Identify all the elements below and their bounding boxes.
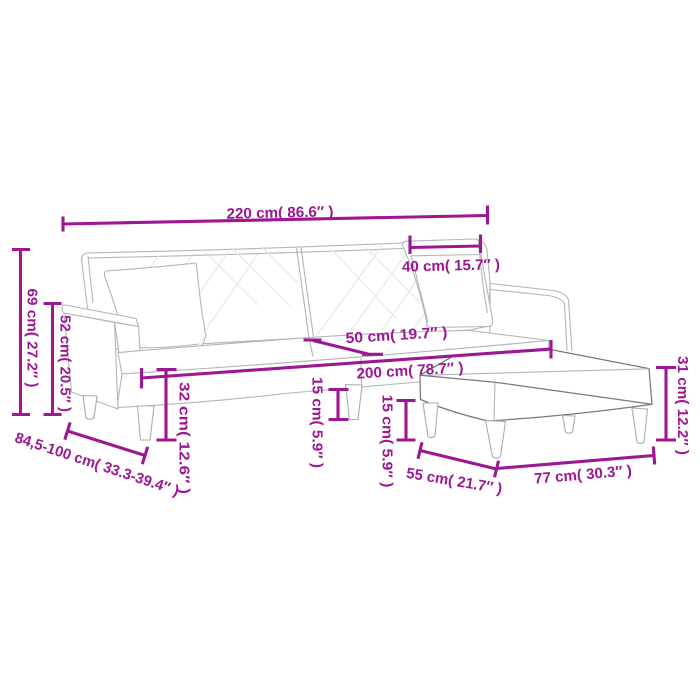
svg-text:52 cm( 20.5″ ): 52 cm( 20.5″ ): [57, 315, 74, 412]
svg-text:32 cm( 12.6″ ): 32 cm( 12.6″ ): [176, 382, 193, 494]
svg-text:220 cm( 86.6″ ): 220 cm( 86.6″ ): [226, 203, 333, 222]
svg-text:69 cm( 27.2″ ): 69 cm( 27.2″ ): [24, 289, 41, 388]
svg-text:15 cm( 5.9″ ): 15 cm( 5.9″ ): [309, 377, 326, 468]
svg-text:40 cm( 15.7″ ): 40 cm( 15.7″ ): [402, 256, 500, 276]
svg-text:31 cm( 12.2″ ): 31 cm( 12.2″ ): [674, 356, 691, 455]
svg-text:15 cm( 5.9″ ): 15 cm( 5.9″ ): [379, 395, 396, 488]
